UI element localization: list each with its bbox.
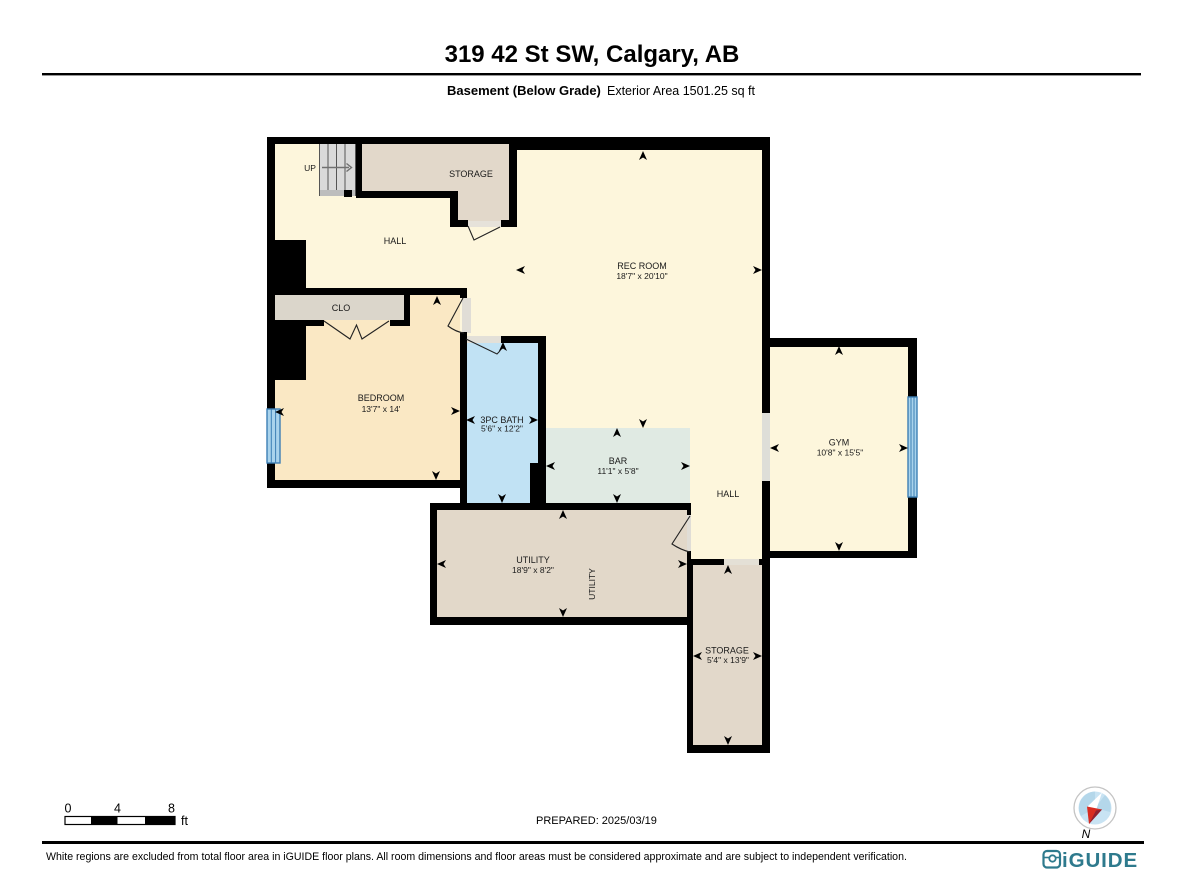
svg-text:BEDROOM: BEDROOM [358, 393, 405, 403]
svg-text:5'4" x 13'9": 5'4" x 13'9" [707, 655, 749, 665]
svg-text:ft: ft [181, 814, 188, 828]
svg-text:UP: UP [304, 163, 316, 173]
svg-text:0: 0 [65, 802, 72, 816]
svg-text:5'6" x 12'2": 5'6" x 12'2" [481, 424, 523, 434]
svg-text:N: N [1082, 827, 1091, 841]
svg-text:STORAGE: STORAGE [705, 646, 749, 656]
svg-text:4: 4 [114, 802, 121, 816]
svg-text:18'9" x 8'2": 18'9" x 8'2" [512, 565, 554, 575]
svg-text:White regions are excluded fro: White regions are excluded from total fl… [46, 851, 907, 863]
svg-text:319 42 St SW, Calgary, AB: 319 42 St SW, Calgary, AB [445, 41, 740, 68]
svg-text:11'1" x 5'8": 11'1" x 5'8" [597, 466, 638, 476]
svg-text:GYM: GYM [829, 438, 850, 448]
svg-text:BAR: BAR [609, 456, 628, 466]
svg-text:Exterior Area 1501.25 sq ft: Exterior Area 1501.25 sq ft [607, 84, 756, 98]
svg-text:CLO: CLO [332, 303, 351, 313]
svg-text:18'7" x 20'10": 18'7" x 20'10" [616, 271, 667, 281]
svg-text:10'8" x 15'5": 10'8" x 15'5" [817, 448, 864, 458]
svg-text:iGUIDE: iGUIDE [1062, 849, 1138, 872]
svg-text:STORAGE: STORAGE [449, 169, 493, 179]
svg-text:Basement (Below Grade): Basement (Below Grade) [447, 83, 601, 98]
svg-text:REC ROOM: REC ROOM [617, 261, 667, 271]
svg-text:UTILITY: UTILITY [587, 568, 597, 600]
svg-text:HALL: HALL [384, 236, 407, 246]
svg-text:8: 8 [168, 802, 175, 816]
svg-text:PREPARED: 2025/03/19: PREPARED: 2025/03/19 [536, 815, 657, 827]
svg-text:UTILITY: UTILITY [516, 555, 550, 565]
svg-text:13'7" x 14': 13'7" x 14' [362, 404, 401, 414]
svg-text:HALL: HALL [717, 489, 740, 499]
